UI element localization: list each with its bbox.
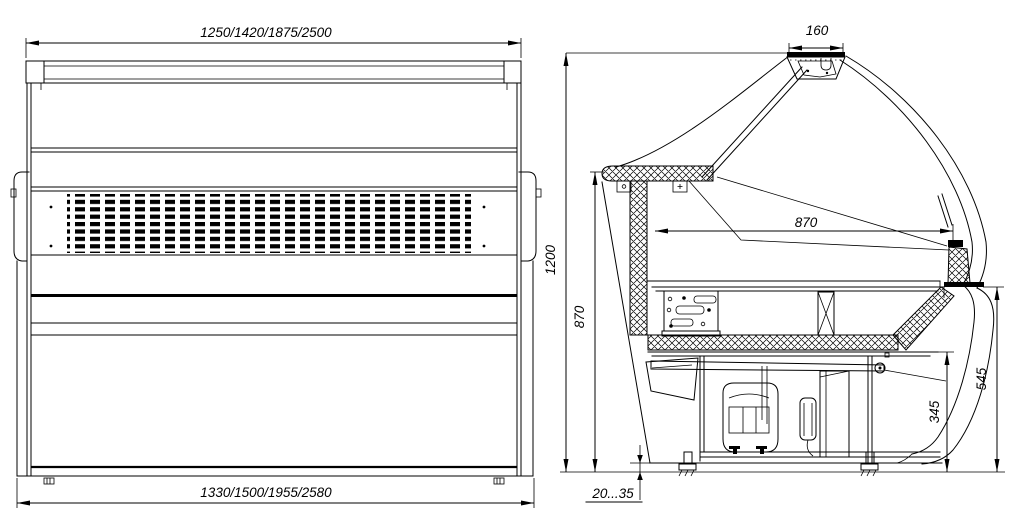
- machine-compartment-frame: [648, 352, 942, 463]
- canopy-width-label: 160: [806, 23, 829, 38]
- side-back-counter: [602, 166, 713, 192]
- refrigerated-display-case-drawing: 1250/1420/1875/2500 1330/1500/1955/2580: [0, 0, 1013, 522]
- overall-height-label: 1200: [543, 244, 558, 275]
- price-strip-rail: [938, 194, 952, 227]
- dim-front-top-length: 1250/1420/1875/2500: [26, 25, 521, 58]
- evaporator-duct-section: [818, 292, 834, 335]
- front-height-label: 545: [974, 367, 989, 390]
- side-canopy-and-lamp: [787, 52, 845, 79]
- dim-machine-bay-height: 345: [927, 352, 954, 472]
- compressor: [723, 366, 778, 454]
- side-display-deck: [648, 281, 944, 298]
- front-top-length-label: 1250/1420/1875/2500: [200, 25, 332, 40]
- dim-canopy-width: 160: [789, 23, 843, 55]
- side-back-wall-insulation: [602, 181, 650, 463]
- floor-clearance-label: 20...35: [591, 486, 634, 501]
- deck-insulation: [648, 240, 984, 350]
- counter-height-label: 870: [572, 305, 587, 328]
- side-view: 160 870 1200 870 345 545: [543, 23, 1005, 502]
- condenser-fan-assembly: [646, 358, 946, 400]
- dim-display-depth: 870: [655, 215, 953, 247]
- dim-counter-height: 870: [572, 172, 604, 472]
- electrical-control-box: [662, 291, 720, 336]
- front-body-outline: [27, 83, 521, 476]
- grille-louvre-pattern: [67, 194, 471, 253]
- machine-bay-height-label: 345: [927, 400, 942, 423]
- front-right-end-panel: [519, 172, 541, 476]
- dim-front-height: 545: [974, 287, 1004, 472]
- front-view: 1250/1420/1875/2500 1330/1500/1955/2580: [11, 25, 541, 508]
- drawing-canvas: 1250/1420/1875/2500 1330/1500/1955/2580: [0, 0, 1013, 522]
- dim-floor-clearance: 20...35: [586, 445, 653, 502]
- display-depth-label: 870: [795, 215, 818, 230]
- front-adjustable-feet: [44, 476, 504, 484]
- ventilation-grille: [50, 194, 486, 253]
- front-left-end-panel: [11, 172, 29, 476]
- front-canopy-lamp-cover: [26, 61, 521, 90]
- dim-front-bottom-length: 1330/1500/1955/2580: [17, 478, 534, 508]
- front-bottom-length-label: 1330/1500/1955/2580: [200, 485, 332, 500]
- receiver-and-condenser: [800, 371, 849, 457]
